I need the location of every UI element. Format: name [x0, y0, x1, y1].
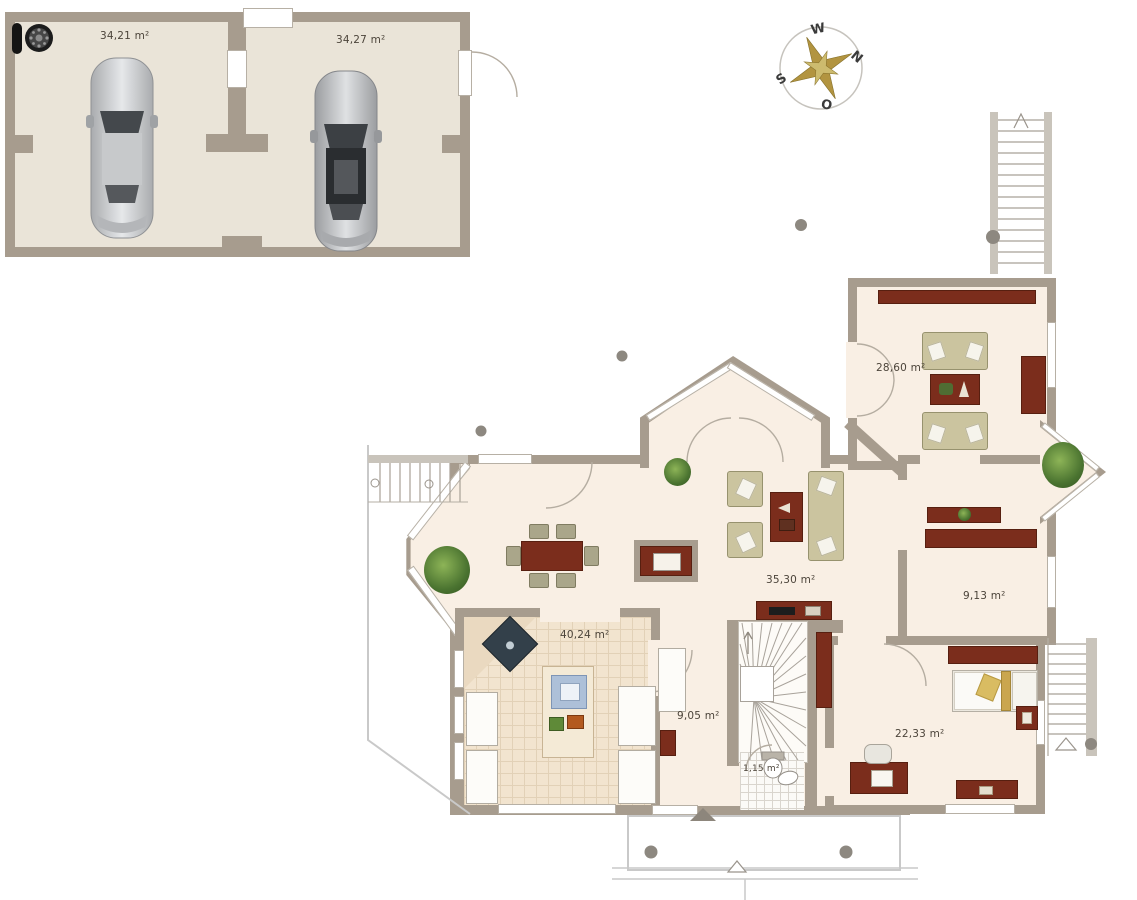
- entry-plant: [664, 458, 691, 486]
- stove-icon: [551, 675, 587, 709]
- stair-landing: [740, 666, 774, 702]
- stairs-west: [368, 455, 468, 502]
- entrance-marker: [690, 808, 716, 821]
- living-armchair-bottom: [727, 522, 763, 558]
- plan-linework: [0, 0, 1137, 900]
- kitchen-area-label: 40,24 m²: [560, 629, 609, 641]
- east-bay-plant: [1042, 442, 1084, 488]
- hall-cabinet-small: [660, 730, 676, 756]
- sitting-shelf: [878, 290, 1036, 304]
- living-sofa: [808, 471, 844, 561]
- floor-plan: 34,21 m² 34,27 m² W N O S: [0, 0, 1137, 900]
- sitting-area-label: 28,60 m²: [876, 362, 925, 374]
- kitchen-counter-east: [618, 686, 656, 746]
- living-armchair-top: [727, 471, 763, 507]
- corridor-sideboard: [925, 529, 1037, 548]
- kitchen-counter-west: [466, 692, 498, 746]
- sitting-sofa-top: [922, 332, 988, 370]
- tv-sideboard: [756, 601, 832, 620]
- dining-table: [521, 541, 583, 571]
- hall-wardrobe-tall: [816, 632, 832, 708]
- sitting-sideboard: [1021, 356, 1046, 414]
- dining-chair: [506, 546, 521, 566]
- fireplace: [640, 546, 692, 576]
- dining-chair: [529, 573, 549, 588]
- stairs-northeast: [986, 112, 1052, 274]
- hall-wardrobe: [658, 648, 686, 712]
- dining-chair: [556, 573, 576, 588]
- bedroom-area-label: 22,33 m²: [895, 728, 944, 740]
- stairs-east: [1048, 638, 1097, 756]
- dining-chair: [529, 524, 549, 539]
- living-coffee-table: [770, 492, 803, 542]
- corridor-shelf-plant: [958, 508, 971, 521]
- hall-area-label: 9,05 m²: [677, 710, 720, 722]
- sitting-sofa-bottom: [922, 412, 988, 450]
- corridor-area-label: 9,13 m²: [963, 590, 1006, 602]
- bedroom-bottom-sideboard: [956, 780, 1018, 799]
- wc-area-label: 1,15 m²: [743, 764, 780, 774]
- dining-chair: [556, 524, 576, 539]
- dining-bay-plant: [424, 546, 470, 594]
- kitchen-island: [542, 666, 594, 758]
- desk: [850, 762, 908, 794]
- bedroom-top-sideboard: [948, 646, 1038, 664]
- kitchen-counter-east-2: [618, 750, 656, 804]
- kitchen-counter-west-2: [466, 750, 498, 804]
- nightstand: [1016, 706, 1038, 730]
- dining-chair: [584, 546, 599, 566]
- living-area-label: 35,30 m²: [766, 574, 815, 586]
- sitting-coffee-table: [930, 374, 980, 405]
- door-arcs: [472, 52, 926, 771]
- desk-chair: [864, 744, 892, 764]
